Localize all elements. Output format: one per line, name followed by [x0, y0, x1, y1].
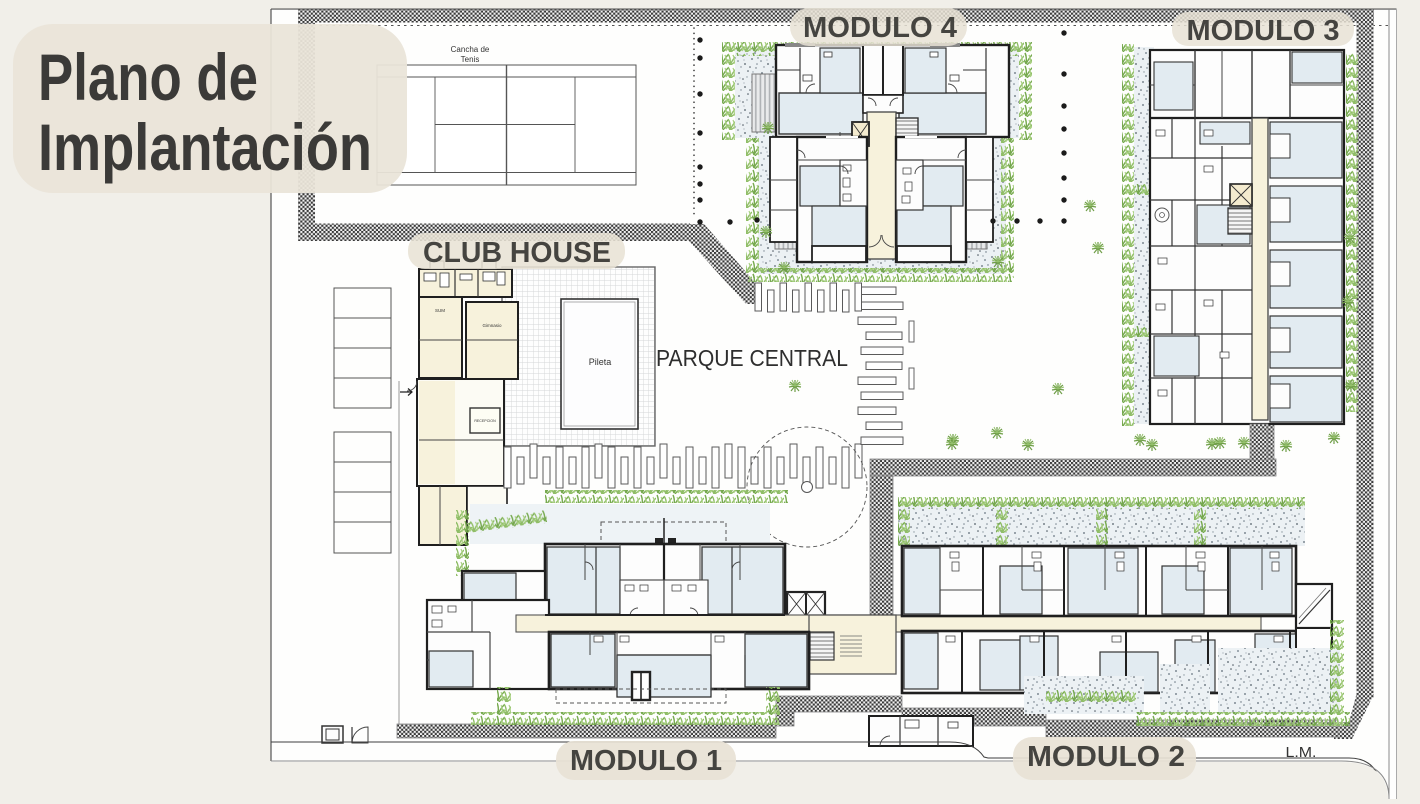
svg-text:Plano de: Plano de [38, 40, 258, 114]
svg-text:MODULO 4: MODULO 4 [803, 12, 957, 44]
svg-text:Tenis: Tenis [461, 55, 480, 64]
svg-text:RECEPCION: RECEPCION [474, 419, 496, 423]
svg-text:MODULO 3: MODULO 3 [1187, 15, 1340, 47]
svg-text:Cancha de: Cancha de [451, 45, 490, 54]
svg-text:Implantación: Implantación [38, 110, 372, 184]
svg-text:MODULO 2: MODULO 2 [1027, 741, 1185, 773]
svg-text:Pileta: Pileta [589, 357, 612, 367]
svg-text:Gimnasio: Gimnasio [482, 323, 502, 328]
svg-text:PARQUE CENTRAL: PARQUE CENTRAL [656, 345, 848, 371]
svg-text:SUM: SUM [435, 308, 445, 313]
svg-text:MODULO 1: MODULO 1 [570, 745, 722, 777]
svg-text:L.M.: L.M. [1286, 744, 1317, 761]
svg-text:CLUB HOUSE: CLUB HOUSE [423, 237, 611, 269]
